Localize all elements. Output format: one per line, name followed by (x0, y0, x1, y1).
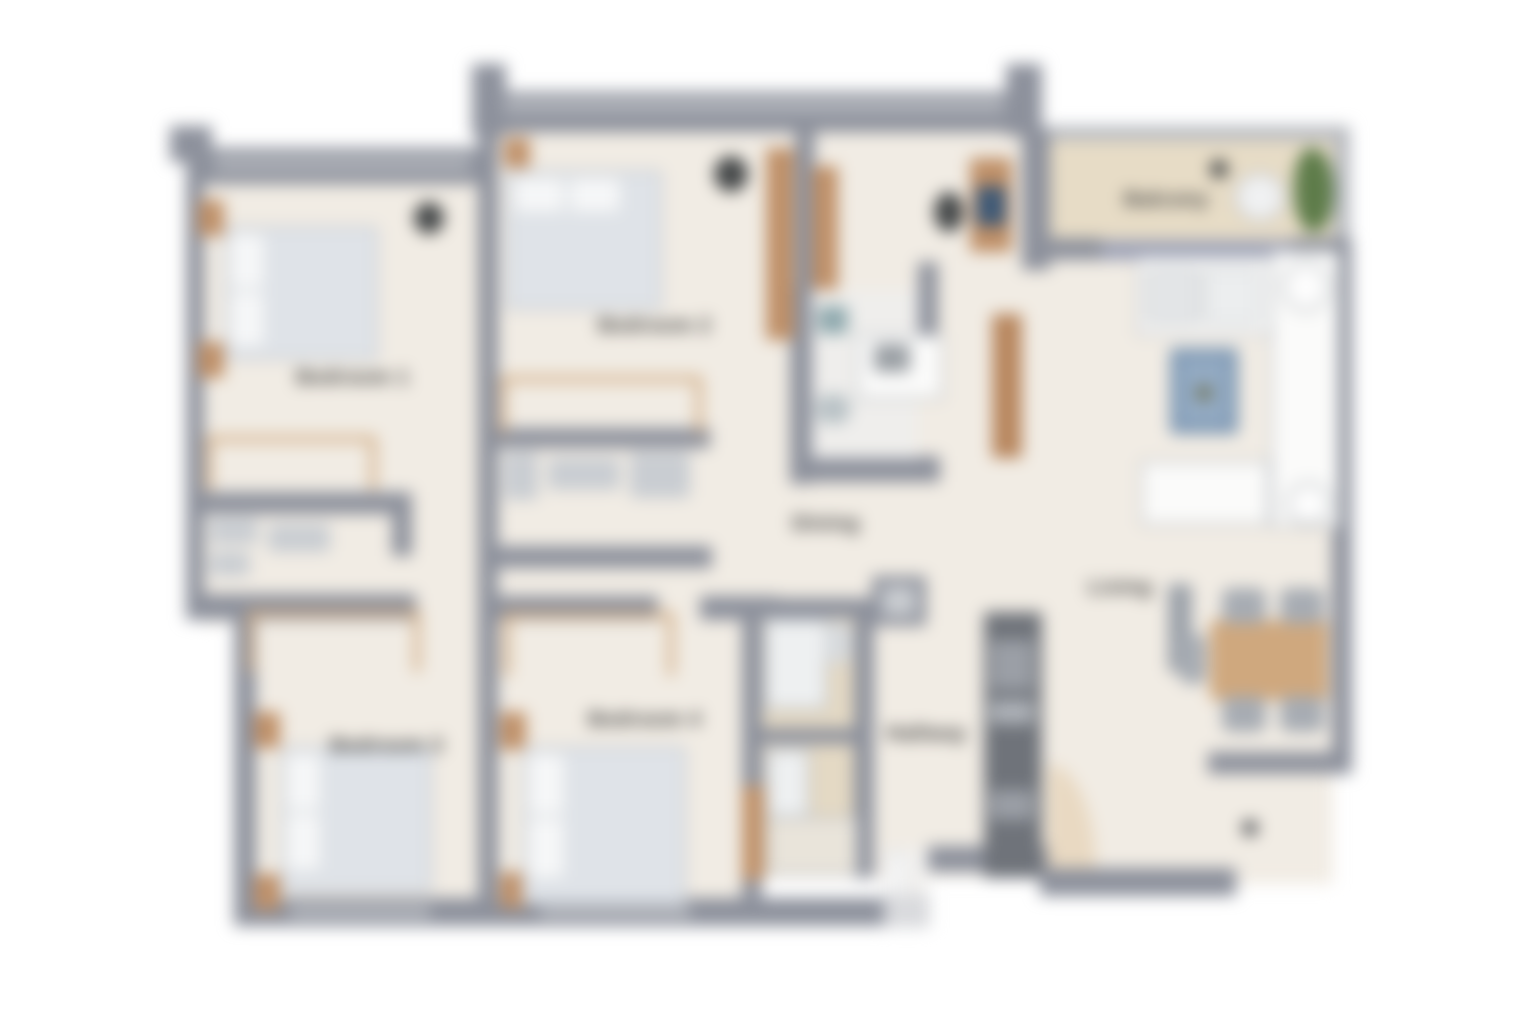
blurred-plan: Bedroom 1 Bedroom 2 Bedroom 3 Bedroom 4 … (0, 0, 1536, 1024)
entrance-landing (884, 894, 930, 928)
bath1-toilet (824, 622, 852, 664)
kitchen-tall-unit-panel-2 (990, 700, 1034, 724)
bedroom2-wardrobe (766, 148, 794, 340)
balcony-wall-top (1048, 126, 1348, 140)
bedroom2-pillow-1 (512, 176, 566, 214)
window-bedroom3-bottom (290, 906, 430, 918)
label-balcony: Balcony (1124, 188, 1209, 212)
kitchen-tall-unit-panel-3 (990, 790, 1034, 820)
bedroom4-door (742, 786, 764, 880)
bedroom3-pillow-2 (284, 812, 322, 872)
bath2-shower (766, 816, 858, 876)
label-bedroom4: Bedroom 4 (588, 708, 701, 732)
dining-chair-4 (1280, 696, 1324, 732)
bedroom1-ceiling-fixture (414, 202, 444, 234)
label-living: Living (1088, 576, 1152, 600)
closet2-item-3 (630, 452, 690, 498)
balcony-table (1234, 172, 1286, 222)
bedroom1-pillow-1 (228, 232, 266, 290)
floor-plan-image: Bedroom 1 Bedroom 2 Bedroom 3 Bedroom 4 … (0, 0, 1536, 1024)
shaft-inner (882, 586, 916, 616)
bedroom4-desk (504, 612, 674, 676)
kitchen-island-bowl (1196, 386, 1212, 400)
kitchen-counter-bottom (1140, 460, 1270, 526)
kitchen-tall-unit-panel-1 (990, 640, 1034, 690)
closet1-item-2 (268, 524, 330, 552)
bath2-sink (766, 748, 810, 818)
wall-stub-bottom-right (1208, 752, 1352, 774)
bedroom2-ceiling-fixture (714, 156, 748, 192)
dining-chair-3 (1222, 696, 1266, 732)
label-bedroom2: Bedroom 2 (598, 314, 711, 338)
bedroom2-nightstand (504, 138, 530, 168)
closet2-item-1 (504, 452, 538, 500)
bedroom1-pillow-2 (228, 290, 266, 348)
balcony-wall-right (1334, 126, 1350, 242)
entry-office-chair (934, 192, 964, 232)
bedroom2-desk (500, 376, 702, 434)
label-hallway: Hallway (886, 722, 967, 746)
bedroom4-pillow-1 (526, 752, 566, 816)
window-bay (504, 100, 1004, 112)
kitchen-cooktop (1286, 482, 1332, 526)
dining-table (1210, 620, 1328, 700)
label-bedroom3: Bedroom 3 (330, 734, 443, 758)
closet2-item-2 (548, 458, 620, 490)
bedroom2-pillow-2 (568, 176, 622, 214)
dining-chair-1 (1222, 588, 1266, 624)
bedroom4-nightstand-top (500, 712, 526, 750)
wall-closet2-bottom (490, 546, 712, 568)
dining-chair-2 (1280, 588, 1324, 624)
midbath-toilet (816, 394, 850, 424)
bath1-shower (764, 618, 828, 710)
bedroom3-pillow-1 (284, 752, 322, 812)
alcove-door-stop (1242, 820, 1258, 836)
bedroom1-nightstand-top (198, 200, 224, 236)
balcony-small-item (1210, 160, 1228, 178)
bedroom4-pillow-2 (526, 816, 566, 880)
wall-midbath-bottom (790, 456, 940, 482)
balcony-plant (1294, 148, 1334, 232)
dining-chair-end (1180, 634, 1206, 684)
label-bedroom1: Bedroom 1 (296, 366, 409, 390)
wall-closet1-top (188, 492, 398, 514)
wall-bedroom1-bedroom2 (478, 128, 498, 468)
bedroom1-nightstand-bottom (198, 342, 224, 378)
wall-entry-balcony (1022, 128, 1050, 270)
dining-tall-cabinet (992, 314, 1022, 458)
wall-bay-top (488, 92, 1040, 132)
window-bedroom1 (215, 158, 470, 170)
kitchen-appliance-2 (1204, 268, 1260, 324)
kitchen-appliance-1 (1146, 268, 1200, 324)
wall-bath-divider (742, 726, 874, 744)
bedroom3-nightstand-bottom (254, 874, 280, 910)
entry-laptop (976, 186, 1006, 226)
wall-bedroom3-bedroom4 (478, 596, 498, 926)
kitchen-sink (1282, 262, 1330, 312)
window-bedroom4-bottom (540, 906, 690, 918)
label-dining: Dining (792, 512, 860, 536)
closet1-item-3 (210, 552, 250, 576)
bedroom3-nightstand-top (254, 712, 280, 748)
midbath-sink (818, 306, 848, 334)
bedroom1-desk (206, 436, 376, 490)
closet1-item-1 (210, 518, 258, 544)
wall-slider-end-left (1048, 238, 1102, 260)
wall-alcove-bottom (1040, 868, 1236, 896)
wall-closet1-stub (392, 492, 412, 556)
bedroom3-desk (248, 610, 420, 672)
washing-machine (874, 344, 910, 372)
